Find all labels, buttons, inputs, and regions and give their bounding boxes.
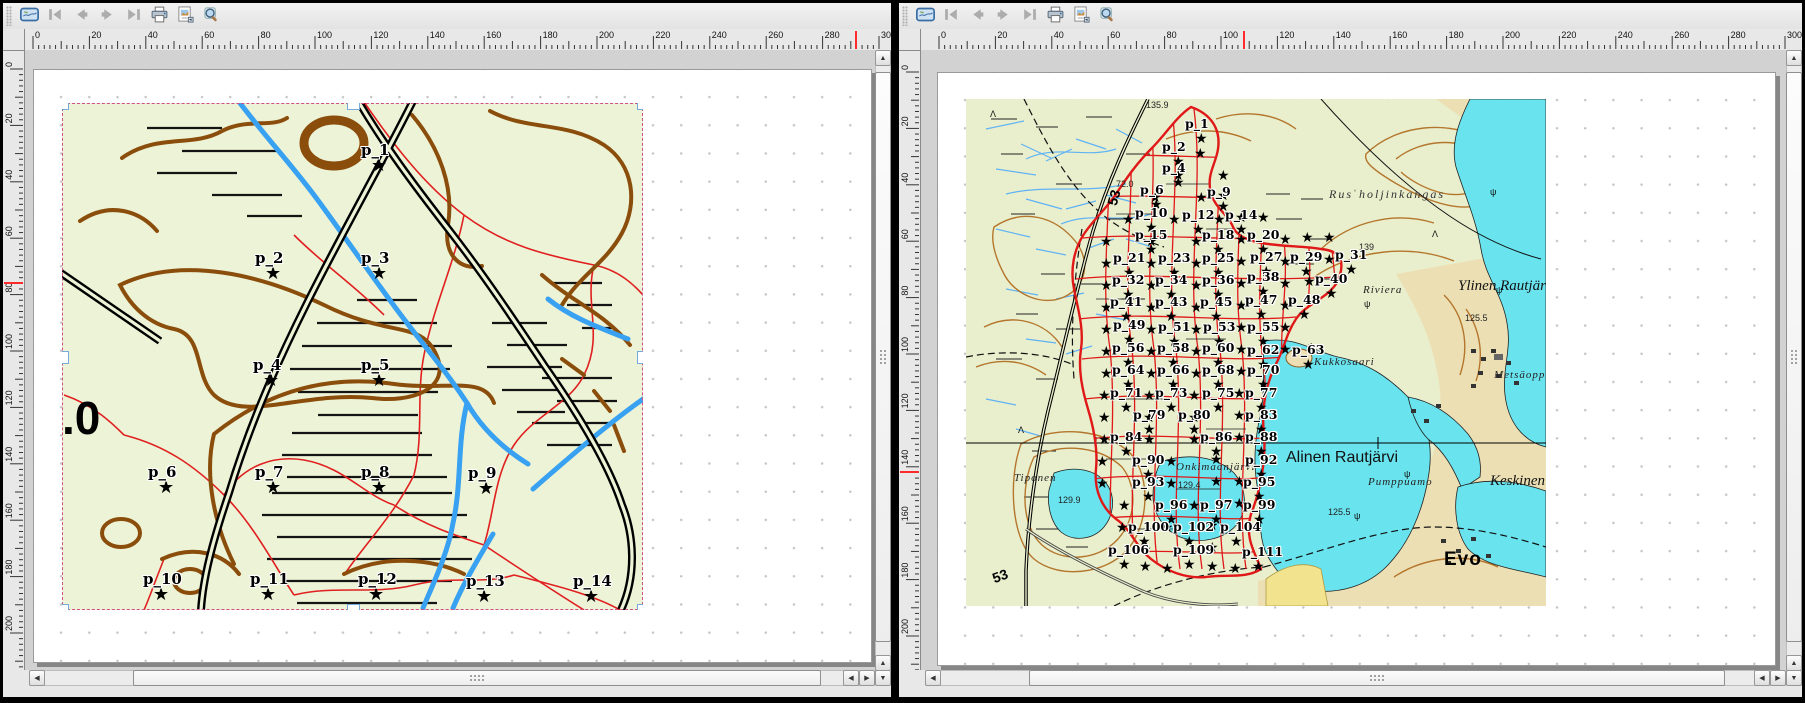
vertical-scrollbar[interactable]: ▲ ▲ ▼ xyxy=(1786,50,1802,686)
svg-text:220: 220 xyxy=(655,30,670,40)
v-scroll-thumb[interactable] xyxy=(875,72,891,642)
svg-text:40: 40 xyxy=(900,173,910,183)
selection-handle[interactable] xyxy=(62,351,69,364)
point-label: p_102 xyxy=(1173,519,1214,534)
selection-handle[interactable] xyxy=(347,103,360,110)
point-star-icon: ★ xyxy=(1116,520,1129,534)
svg-text:20: 20 xyxy=(900,116,910,126)
map-text: Evo xyxy=(1444,549,1482,571)
point-label: p_40 xyxy=(1315,271,1347,286)
svg-text:120: 120 xyxy=(373,30,388,40)
next-feature-button[interactable] xyxy=(991,5,1015,27)
export-image-icon xyxy=(176,6,195,26)
point-star-icon: ★ xyxy=(1188,498,1201,512)
zoom-settings-icon xyxy=(1098,6,1117,26)
horizontal-scrollbar[interactable]: ◀ ◀ ▶ xyxy=(29,670,875,686)
svg-text:240: 240 xyxy=(712,30,727,40)
point-label: p_63 xyxy=(1292,342,1324,357)
point-label: p_95 xyxy=(1243,474,1275,489)
previous-feature-icon xyxy=(968,6,987,26)
point-label: p_10 xyxy=(1135,205,1167,220)
point-star-icon: ★ xyxy=(1206,559,1219,573)
point-star-icon: ★ xyxy=(1142,489,1155,503)
map-text: Kukkosaari xyxy=(1314,356,1375,368)
map-text: Riviera xyxy=(1363,284,1402,296)
first-feature-button[interactable] xyxy=(43,5,67,27)
next-feature-icon xyxy=(98,6,117,26)
point-star-icon: ★ xyxy=(1235,364,1248,378)
export-image-icon xyxy=(1072,6,1091,26)
selection-handle[interactable] xyxy=(347,604,360,610)
svg-text:280: 280 xyxy=(1731,30,1746,40)
point-label: p_84 xyxy=(1110,429,1142,444)
map-text: Keskinen xyxy=(1490,473,1545,490)
point-label: p_14 xyxy=(573,572,612,590)
dual-composer-screenshot: 0204060801001201401601802002202402602803… xyxy=(0,0,1805,703)
point-star-icon: ★ xyxy=(1188,432,1201,446)
svg-text:120: 120 xyxy=(900,393,910,408)
point-label: p_109 xyxy=(1173,542,1214,557)
point-label: p_9 xyxy=(1207,184,1231,199)
atlas-preview-button[interactable] xyxy=(913,5,937,27)
point-label: p_12 xyxy=(358,570,397,588)
point-label: p_4 xyxy=(253,356,281,374)
point-label: p_86 xyxy=(1200,429,1232,444)
point-label: p_9 xyxy=(468,464,496,482)
v-scroll-thumb[interactable] xyxy=(1786,72,1802,642)
svg-text:200: 200 xyxy=(900,619,910,634)
point-label: p_38 xyxy=(1247,269,1279,284)
point-label: p_56 xyxy=(1112,340,1144,355)
scroll-right-button[interactable]: ▶ xyxy=(859,670,875,686)
point-star-icon: ★ xyxy=(1212,400,1225,414)
point-label: p_14 xyxy=(1225,207,1257,222)
point-label: p_25 xyxy=(1202,250,1234,265)
point-label: p_92 xyxy=(1245,452,1277,467)
atlas-preview-button[interactable] xyxy=(17,5,41,27)
point-star-icon: ★ xyxy=(1145,366,1158,380)
map-text: ψ xyxy=(1354,511,1360,521)
point-label: p_48 xyxy=(1288,292,1320,307)
point-label: p_29 xyxy=(1290,249,1322,264)
svg-text:260: 260 xyxy=(1674,30,1689,40)
svg-text:140: 140 xyxy=(4,447,14,462)
grip-icon xyxy=(879,349,887,365)
point-label: p_51 xyxy=(1158,319,1190,334)
vertical-scrollbar[interactable]: ▲ ▲ ▼ xyxy=(875,50,891,686)
selection-handle[interactable] xyxy=(637,351,643,364)
svg-text:280: 280 xyxy=(825,30,840,40)
svg-text:180: 180 xyxy=(4,560,14,575)
point-star-icon: ★ xyxy=(1165,454,1178,468)
point-star-icon: ★ xyxy=(1257,210,1270,224)
point-star-icon: ★ xyxy=(1279,276,1292,290)
point-star-icon: ★ xyxy=(1118,557,1131,571)
svg-text:200: 200 xyxy=(4,616,14,631)
point-star-icon: ★ xyxy=(1279,342,1292,356)
point-label: p_20 xyxy=(1247,227,1279,242)
point-star-icon: ★ xyxy=(1195,190,1208,204)
atlas-preview-icon xyxy=(916,6,935,26)
point-label: p_27 xyxy=(1250,249,1282,264)
svg-text:160: 160 xyxy=(1392,30,1407,40)
horizontal-scrollbar[interactable]: ◀ ◀ ▶ xyxy=(925,670,1786,686)
point-star-icon: ★ xyxy=(1213,212,1226,226)
point-label: p_6 xyxy=(148,463,176,481)
print-icon xyxy=(1046,6,1065,26)
svg-text:260: 260 xyxy=(768,30,783,40)
point-label: p_15 xyxy=(1135,227,1167,242)
first-feature-icon xyxy=(942,6,961,26)
composer-window-left: 0204060801001201401601802002202402602803… xyxy=(3,3,891,697)
point-star-icon: ★ xyxy=(1233,430,1246,444)
selection-handle[interactable] xyxy=(637,604,643,610)
previous-feature-button[interactable] xyxy=(965,5,989,27)
map-text: Rusˈholjinkangas xyxy=(1329,187,1445,202)
toolbar xyxy=(899,3,1802,30)
zoom-settings-button[interactable] xyxy=(199,5,223,27)
map-text: 125.5 xyxy=(1465,313,1488,323)
svg-text:20: 20 xyxy=(91,30,101,40)
print-icon xyxy=(150,6,169,26)
point-label: p_77 xyxy=(1245,385,1277,400)
grip-icon xyxy=(469,674,485,682)
toolbar-handle xyxy=(6,6,12,26)
point-star-icon: ★ xyxy=(1235,276,1248,290)
point-label: p_106 xyxy=(1108,542,1149,557)
first-feature-button[interactable] xyxy=(939,5,963,27)
point-star-icon: ★ xyxy=(1165,476,1178,490)
point-label: p_2 xyxy=(1162,139,1186,154)
point-star-icon: ★ xyxy=(1279,320,1292,334)
scroll-right-button[interactable]: ▶ xyxy=(1770,670,1786,686)
point-star-icon: ★ xyxy=(1098,432,1111,446)
vertical-ruler: 020406080100120140160180200 xyxy=(899,50,921,670)
svg-text:240: 240 xyxy=(1618,30,1633,40)
point-label: p_104 xyxy=(1220,519,1261,534)
scroll-left-button[interactable]: ◀ xyxy=(29,670,45,686)
svg-text:140: 140 xyxy=(900,450,910,465)
svg-text:160: 160 xyxy=(486,30,501,40)
zoom-settings-icon xyxy=(202,6,221,26)
map-text: .0 xyxy=(62,391,100,445)
point-star-icon: ★ xyxy=(1145,256,1158,270)
point-label: p_43 xyxy=(1155,294,1187,309)
map-item[interactable]: p_1★p_2★p_4★p_6★p_9★p_10★p_12★p_14★p_15★… xyxy=(966,99,1546,606)
last-feature-button[interactable] xyxy=(121,5,145,27)
point-star-icon: ★ xyxy=(1098,388,1111,402)
point-star-icon: ★ xyxy=(1325,286,1338,300)
svg-text:0: 0 xyxy=(900,65,910,70)
svg-text:40: 40 xyxy=(4,170,14,180)
point-label: p_1 xyxy=(361,141,389,159)
point-label: p_73 xyxy=(1155,385,1187,400)
paper-page: p_1★p_2★p_3★p_4★p_5★p_6★p_7★p_8★p_9★p_10… xyxy=(33,69,872,663)
point-star-icon: ★ xyxy=(1230,534,1243,548)
point-label: p_34 xyxy=(1155,272,1187,287)
point-label: p_4 xyxy=(1162,160,1186,175)
point-star-icon: ★ xyxy=(1210,452,1223,466)
point-label: p_41 xyxy=(1110,294,1142,309)
last-feature-button[interactable] xyxy=(1017,5,1041,27)
svg-text:0: 0 xyxy=(35,30,40,40)
ruler-corner xyxy=(3,29,25,51)
point-star-icon: ★ xyxy=(1190,278,1203,292)
point-star-icon: ★ xyxy=(1190,344,1203,358)
svg-text:100: 100 xyxy=(4,334,14,349)
point-star-icon: ★ xyxy=(1279,232,1292,246)
scroll-down-button[interactable]: ▼ xyxy=(1786,670,1802,686)
map-text: Alinen Rautjärvi xyxy=(1286,449,1398,467)
last-feature-icon xyxy=(1020,6,1039,26)
point-star-icon: ★ xyxy=(1100,322,1113,336)
point-label: p_68 xyxy=(1202,362,1234,377)
map-text: 72.0 xyxy=(1116,179,1134,189)
point-star-icon: ★ xyxy=(1235,320,1248,334)
h-scroll-thumb[interactable] xyxy=(133,670,821,686)
point-star-icon: ★ xyxy=(1122,212,1135,226)
point-label: p_71 xyxy=(1110,385,1142,400)
svg-text:40: 40 xyxy=(148,30,158,40)
svg-text:80: 80 xyxy=(1167,30,1177,40)
point-label: p_18 xyxy=(1202,227,1234,242)
point-star-icon: ★ xyxy=(1195,131,1208,145)
scroll-up-button[interactable]: ▲ xyxy=(1786,50,1802,66)
point-star-icon: ★ xyxy=(1118,498,1131,512)
svg-text:120: 120 xyxy=(4,390,14,405)
svg-text:180: 180 xyxy=(900,563,910,578)
composition-canvas: p_1★p_2★p_4★p_6★p_9★p_10★p_12★p_14★p_15★… xyxy=(921,50,1786,670)
point-label: p_70 xyxy=(1247,362,1279,377)
map-text: Pumppuamo xyxy=(1368,476,1433,488)
point-label: p_83 xyxy=(1245,407,1277,422)
point-star-icon: ★ xyxy=(1161,561,1174,575)
point-label: p_79 xyxy=(1133,407,1165,422)
map-text: 129.4 xyxy=(1178,480,1201,490)
svg-text:180: 180 xyxy=(543,30,558,40)
scroll-up-button[interactable]: ▲ xyxy=(875,50,891,66)
svg-text:160: 160 xyxy=(4,503,14,518)
point-label: p_66 xyxy=(1157,362,1189,377)
svg-text:220: 220 xyxy=(1561,30,1576,40)
point-star-icon: ★ xyxy=(1098,410,1111,424)
ruler-corner xyxy=(899,29,921,51)
grip-icon xyxy=(1369,674,1385,682)
map-text: Metsäoppilaitos xyxy=(1494,369,1546,381)
point-label: p_32 xyxy=(1112,272,1144,287)
map-text: ψ xyxy=(1496,285,1502,295)
point-star-icon: ★ xyxy=(1139,559,1152,573)
svg-text:40: 40 xyxy=(1054,30,1064,40)
point-label: p_90 xyxy=(1132,452,1164,467)
point-star-icon: ★ xyxy=(1188,388,1201,402)
point-star-icon: ★ xyxy=(1100,344,1113,358)
scroll-down-button[interactable]: ▼ xyxy=(875,670,891,686)
horizontal-ruler: 0204060801001201401601802002202402602803… xyxy=(3,29,891,51)
scroll-left-button[interactable]: ◀ xyxy=(925,670,941,686)
point-label: p_31 xyxy=(1335,247,1367,262)
svg-text:80: 80 xyxy=(900,286,910,296)
map-text: ψ xyxy=(1490,187,1496,197)
point-label: p_1 xyxy=(1185,116,1209,131)
previous-feature-button[interactable] xyxy=(69,5,93,27)
point-label: p_60 xyxy=(1202,340,1234,355)
point-star-icon: ★ xyxy=(1210,474,1223,488)
point-star-icon: ★ xyxy=(1120,400,1133,414)
toolbar xyxy=(3,3,891,30)
svg-text:60: 60 xyxy=(900,229,910,239)
selection-handle[interactable] xyxy=(62,604,69,610)
point-star-icon: ★ xyxy=(1323,230,1336,244)
point-label: p_2 xyxy=(255,249,283,267)
point-star-icon: ★ xyxy=(1301,230,1314,244)
point-label: p_6 xyxy=(1140,182,1164,197)
point-label: p_5 xyxy=(361,356,389,374)
horizontal-ruler: 0204060801001201401601802002202402602803… xyxy=(899,29,1802,51)
point-star-icon: ★ xyxy=(1323,252,1336,266)
point-label: p_97 xyxy=(1200,497,1232,512)
point-star-icon: ★ xyxy=(1235,254,1248,268)
svg-text:100: 100 xyxy=(1223,30,1238,40)
point-label: p_13 xyxy=(466,572,505,590)
atlas-preview-icon xyxy=(20,6,39,26)
point-label: p_8 xyxy=(361,463,389,481)
point-label: p_93 xyxy=(1132,474,1164,489)
point-label: p_7 xyxy=(255,463,283,481)
print-button[interactable] xyxy=(1043,5,1067,27)
point-label: p_99 xyxy=(1243,497,1275,512)
point-star-icon: ★ xyxy=(1183,557,1196,571)
svg-text:140: 140 xyxy=(430,30,445,40)
point-star-icon: ★ xyxy=(1252,559,1265,573)
selection-handle[interactable] xyxy=(62,103,69,110)
first-feature-icon xyxy=(46,6,65,26)
scroll-up-button-2[interactable]: ▲ xyxy=(1786,655,1802,671)
export-image-button[interactable] xyxy=(173,5,197,27)
point-star-icon: ★ xyxy=(1145,344,1158,358)
point-star-icon: ★ xyxy=(1235,342,1248,356)
point-label: p_47 xyxy=(1245,292,1277,307)
point-label: p_10 xyxy=(143,570,182,588)
point-label: p_21 xyxy=(1113,250,1145,265)
point-star-icon: ★ xyxy=(1096,476,1109,490)
svg-text:160: 160 xyxy=(900,506,910,521)
point-star-icon: ★ xyxy=(1190,234,1203,248)
point-label: p_53 xyxy=(1203,319,1235,334)
svg-text:200: 200 xyxy=(1505,30,1520,40)
point-label: p_49 xyxy=(1113,317,1145,332)
scroll-up-button-2[interactable]: ▲ xyxy=(875,655,891,671)
point-label: p_64 xyxy=(1112,362,1144,377)
point-label: p_62 xyxy=(1247,342,1279,357)
next-feature-button[interactable] xyxy=(95,5,119,27)
point-label: p_36 xyxy=(1202,272,1234,287)
vertical-ruler: 020406080100120140160180200 xyxy=(3,50,25,670)
svg-text:300: 300 xyxy=(881,30,891,40)
map-text: 125.5 xyxy=(1328,507,1351,517)
map-text: 129.9 xyxy=(1058,495,1081,505)
point-label: p_11 xyxy=(250,570,289,588)
point-star-icon: ★ xyxy=(1100,234,1113,248)
scroll-left-button-2[interactable]: ◀ xyxy=(843,670,859,686)
svg-text:300: 300 xyxy=(1787,30,1802,40)
grip-icon xyxy=(1790,349,1798,365)
svg-text:0: 0 xyxy=(941,30,946,40)
point-label: p_58 xyxy=(1157,340,1189,355)
previous-feature-icon xyxy=(72,6,91,26)
point-star-icon: ★ xyxy=(1302,357,1315,371)
svg-text:60: 60 xyxy=(4,226,14,236)
point-star-icon: ★ xyxy=(1100,366,1113,380)
point-label: p_3 xyxy=(361,249,389,267)
h-scroll-thumb[interactable] xyxy=(1029,670,1725,686)
point-star-icon: ★ xyxy=(1120,444,1133,458)
point-star-icon: ★ xyxy=(1233,408,1246,422)
zoom-settings-button[interactable] xyxy=(1095,5,1119,27)
paper-page: p_1★p_2★p_4★p_6★p_9★p_10★p_12★p_14★p_15★… xyxy=(937,72,1776,666)
point-star-icon: ★ xyxy=(1165,400,1178,414)
composition-canvas: p_1★p_2★p_3★p_4★p_5★p_6★p_7★p_8★p_9★p_10… xyxy=(25,50,875,670)
point-label: p_111 xyxy=(1242,544,1283,559)
svg-text:20: 20 xyxy=(997,30,1007,40)
map-text: Tiponen xyxy=(1014,472,1056,484)
point-label: p_75 xyxy=(1202,385,1234,400)
map-text: ψ xyxy=(1364,299,1370,309)
svg-text:60: 60 xyxy=(204,30,214,40)
point-label: p_80 xyxy=(1178,407,1210,422)
point-star-icon: ★ xyxy=(1194,146,1207,160)
point-star-icon: ★ xyxy=(1143,432,1156,446)
point-label: p_55 xyxy=(1247,319,1279,334)
point-star-icon: ★ xyxy=(1303,274,1316,288)
svg-text:100: 100 xyxy=(900,337,910,352)
map-item[interactable]: p_1★p_2★p_3★p_4★p_5★p_6★p_7★p_8★p_9★p_10… xyxy=(62,103,643,610)
scroll-left-button-2[interactable]: ◀ xyxy=(1754,670,1770,686)
svg-text:120: 120 xyxy=(1279,30,1294,40)
svg-text:80: 80 xyxy=(4,283,14,293)
print-button[interactable] xyxy=(147,5,171,27)
svg-text:180: 180 xyxy=(1449,30,1464,40)
map-text: ψ xyxy=(1404,469,1410,479)
map-text: Λ xyxy=(1432,229,1438,239)
map-art-left xyxy=(62,103,643,610)
last-feature-icon xyxy=(124,6,143,26)
svg-text:80: 80 xyxy=(261,30,271,40)
composer-window-right: 0204060801001201401601802002202402602803… xyxy=(899,3,1802,697)
next-feature-icon xyxy=(994,6,1013,26)
point-star-icon: ★ xyxy=(1190,322,1203,336)
point-star-icon: ★ xyxy=(1235,232,1248,246)
point-label: p_96 xyxy=(1155,497,1187,512)
selection-handle[interactable] xyxy=(637,103,643,110)
point-star-icon: ★ xyxy=(1143,388,1156,402)
map-text: Λ xyxy=(990,109,996,119)
svg-text:140: 140 xyxy=(1336,30,1351,40)
svg-text:200: 200 xyxy=(599,30,614,40)
point-label: p_23 xyxy=(1158,250,1190,265)
svg-text:20: 20 xyxy=(4,113,14,123)
point-label: p_12 xyxy=(1182,207,1214,222)
point-star-icon: ★ xyxy=(1190,256,1203,270)
map-text: Λ xyxy=(1018,425,1024,435)
point-label: p_88 xyxy=(1245,429,1277,444)
export-image-button[interactable] xyxy=(1069,5,1093,27)
point-star-icon: ★ xyxy=(1168,212,1181,226)
map-text: 135.9 xyxy=(1146,100,1169,110)
svg-text:0: 0 xyxy=(4,62,14,67)
point-star-icon: ★ xyxy=(1298,307,1311,321)
point-star-icon: ★ xyxy=(1096,454,1109,468)
